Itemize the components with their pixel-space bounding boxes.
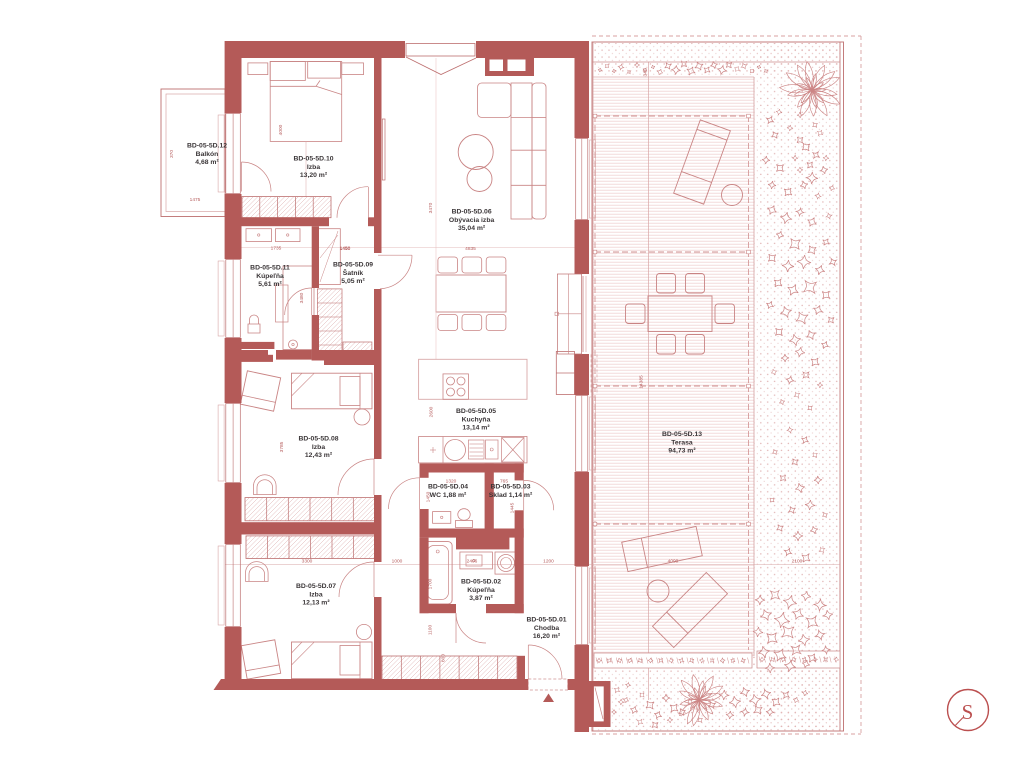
svg-text:5,05 m²: 5,05 m² [341, 278, 365, 285]
svg-text:Kúpeľňa: Kúpeľňa [467, 587, 495, 594]
svg-text:BD-05-5D.09: BD-05-5D.09 [333, 262, 373, 269]
svg-text:4090: 4090 [668, 559, 679, 565]
svg-text:WC 1,88 m²: WC 1,88 m² [430, 492, 467, 499]
svg-text:BD-05-5D.11: BD-05-5D.11 [250, 265, 290, 272]
svg-text:35,04 m²: 35,04 m² [458, 225, 486, 232]
svg-text:BD-05-5D.10: BD-05-5D.10 [293, 156, 333, 163]
svg-text:BD-05-5D.01: BD-05-5D.01 [526, 617, 566, 624]
svg-text:3,87 m²: 3,87 m² [469, 595, 493, 602]
svg-text:4835: 4835 [465, 246, 476, 252]
svg-text:Terasa: Terasa [671, 439, 693, 446]
svg-text:14385: 14385 [639, 375, 645, 389]
svg-text:Kúpeľňa: Kúpeľňa [256, 273, 284, 280]
svg-text:2600: 2600 [429, 406, 435, 417]
svg-text:1000: 1000 [392, 559, 403, 565]
svg-text:3300: 3300 [302, 559, 313, 565]
svg-text:12,13 m²: 12,13 m² [302, 600, 330, 607]
svg-text:1200: 1200 [543, 559, 554, 565]
svg-text:340: 340 [643, 68, 649, 76]
svg-text:BD-05-5D.04: BD-05-5D.04 [428, 484, 468, 491]
svg-text:BD-05-5D.06: BD-05-5D.06 [452, 209, 492, 216]
svg-text:Izba: Izba [307, 164, 320, 171]
svg-text:1450: 1450 [340, 246, 351, 252]
svg-text:13,14 m²: 13,14 m² [462, 425, 490, 432]
svg-text:1735: 1735 [271, 246, 282, 252]
svg-text:Balkón: Balkón [196, 151, 219, 158]
svg-text:5,61 m²: 5,61 m² [258, 281, 282, 288]
svg-text:3785: 3785 [279, 441, 285, 452]
svg-text:1475: 1475 [190, 197, 201, 203]
svg-text:BD-05-5D.13: BD-05-5D.13 [662, 431, 702, 438]
svg-text:BD-05-5D.05: BD-05-5D.05 [456, 408, 496, 415]
svg-text:3480: 3480 [299, 292, 305, 303]
svg-text:2100: 2100 [792, 559, 803, 565]
svg-text:2406: 2406 [467, 559, 478, 565]
svg-text:370: 370 [169, 150, 175, 158]
svg-text:BD-05-5D.12: BD-05-5D.12 [187, 143, 227, 150]
svg-text:S: S [962, 700, 974, 724]
svg-text:BD-05-5D.07: BD-05-5D.07 [296, 583, 336, 590]
svg-text:94,73 m²: 94,73 m² [668, 448, 696, 455]
svg-text:Izba: Izba [309, 591, 322, 598]
svg-text:Izba: Izba [312, 444, 325, 451]
svg-text:16,20 m²: 16,20 m² [533, 633, 561, 640]
svg-text:4000: 4000 [278, 124, 284, 135]
svg-text:Sklad 1,14 m²: Sklad 1,14 m² [489, 492, 533, 499]
svg-text:4,68 m²: 4,68 m² [195, 159, 219, 166]
svg-text:BD-05-5D.02: BD-05-5D.02 [461, 579, 501, 586]
svg-text:13,20 m²: 13,20 m² [300, 172, 328, 179]
svg-text:Kuchyňa: Kuchyňa [462, 416, 491, 423]
svg-text:Šatník: Šatník [343, 268, 364, 277]
svg-text:3470: 3470 [428, 202, 434, 213]
svg-text:BD-05-5D.08: BD-05-5D.08 [298, 436, 338, 443]
svg-text:1100: 1100 [428, 625, 434, 636]
svg-text:12,43 m²: 12,43 m² [305, 452, 333, 459]
svg-text:Chodba: Chodba [534, 625, 560, 632]
svg-text:BD-05-5D.03: BD-05-5D.03 [490, 484, 530, 491]
svg-text:Obývacia izba: Obývacia izba [449, 217, 495, 224]
